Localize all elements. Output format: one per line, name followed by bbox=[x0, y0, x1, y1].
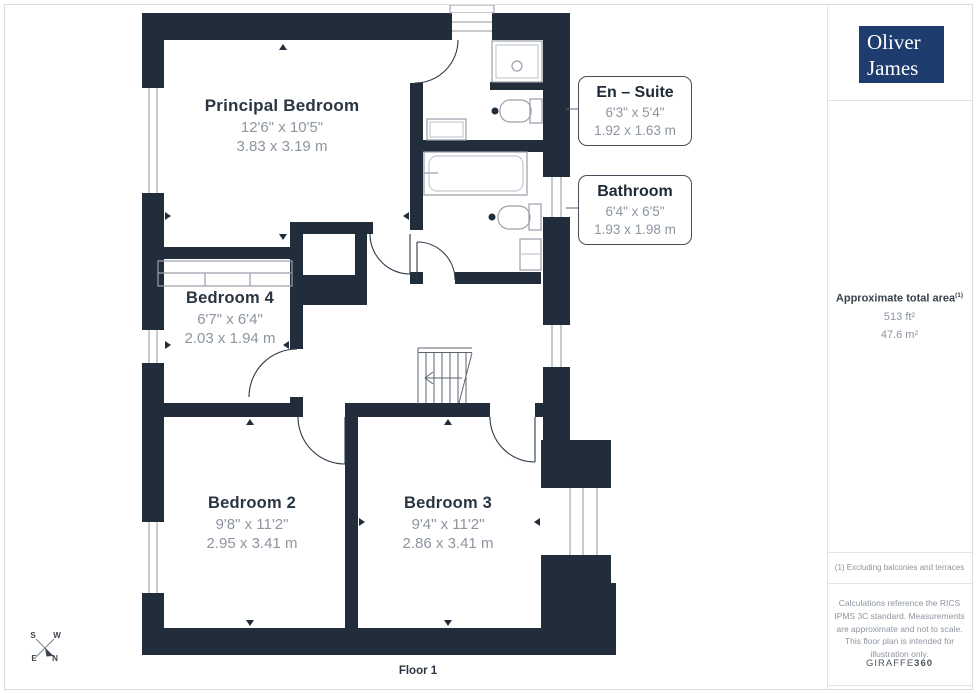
room-label-bedroom-4: Bedroom 4 6'7" x 6'4" 2.03 x 1.94 m bbox=[155, 289, 305, 348]
sidebar-section-line bbox=[827, 685, 972, 686]
oliver-james-logo: Oliver James bbox=[859, 26, 944, 83]
room-label-principal-bedroom: Principal Bedroom 12'6" x 10'5" 3.83 x 3… bbox=[172, 96, 392, 156]
sidebar-section-line bbox=[827, 100, 972, 101]
room-dims-imperial: 12'6" x 10'5" bbox=[172, 118, 392, 137]
compass-west-label: W bbox=[50, 631, 64, 640]
compass-east-label: E bbox=[27, 654, 41, 663]
brand-suffix: 360 bbox=[914, 658, 933, 669]
floor-plan-drawing bbox=[0, 0, 980, 693]
logo-line-2: James bbox=[867, 55, 944, 81]
floor-label: Floor 1 bbox=[333, 665, 503, 677]
ensuite-door-arc bbox=[415, 40, 458, 83]
callout-dims-imperial: 6'4" x 6'5" bbox=[581, 203, 689, 221]
total-area-block: Approximate total area(1) 513 ft² 47.6 m… bbox=[827, 292, 972, 341]
area-footnote-marker: (1) bbox=[955, 292, 963, 299]
sidebar-section-line bbox=[827, 583, 972, 584]
bathtub-icon bbox=[424, 152, 527, 195]
bedroom4-door-arc bbox=[249, 349, 297, 397]
ensuite-sink-icon bbox=[427, 119, 466, 140]
bathroom-sink-icon bbox=[520, 239, 541, 270]
compass-south-label: S bbox=[26, 631, 40, 640]
callout-title: En – Suite bbox=[581, 84, 689, 102]
brand-name: GIRAFFE bbox=[866, 658, 914, 669]
giraffe360-brand: GIRAFFE360 bbox=[827, 658, 972, 669]
staircase bbox=[418, 348, 472, 404]
bedroom3-door-arc bbox=[490, 417, 535, 462]
total-area-title: Approximate total area(1) bbox=[827, 292, 972, 305]
principal-bedroom-door-arc bbox=[370, 234, 410, 274]
callout-bathroom: Bathroom 6'4" x 6'5" 1.93 x 1.98 m bbox=[578, 175, 692, 245]
callout-dims-metric: 1.93 x 1.98 m bbox=[581, 221, 689, 239]
floor-plan-page: Principal Bedroom 12'6" x 10'5" 3.83 x 3… bbox=[0, 0, 980, 693]
callout-en-suite: En – Suite 6'3" x 5'4" 1.92 x 1.63 m bbox=[578, 76, 692, 146]
room-dims-imperial: 9'8" x 11'2" bbox=[152, 515, 352, 534]
shower-icon bbox=[492, 41, 542, 82]
room-dims-metric: 2.86 x 3.41 m bbox=[348, 534, 548, 553]
room-label-bedroom-3: Bedroom 3 9'4" x 11'2" 2.86 x 3.41 m bbox=[348, 494, 548, 553]
room-dims-metric: 2.95 x 3.41 m bbox=[152, 534, 352, 553]
area-footnote: (1) Excluding balconies and terraces bbox=[827, 563, 972, 572]
room-name: Principal Bedroom bbox=[172, 96, 392, 116]
callout-title: Bathroom bbox=[581, 183, 689, 201]
room-name: Bedroom 2 bbox=[152, 494, 352, 513]
room-dims-imperial: 9'4" x 11'2" bbox=[348, 515, 548, 534]
logo-line-1: Oliver bbox=[867, 29, 944, 55]
sidebar-section-line bbox=[827, 552, 972, 553]
room-name: Bedroom 4 bbox=[155, 289, 305, 308]
wardrobe-icon bbox=[158, 261, 292, 286]
total-area-ft: 513 ft² bbox=[827, 311, 972, 323]
room-dims-metric: 3.83 x 3.19 m bbox=[172, 137, 392, 156]
sidebar-divider bbox=[827, 4, 828, 689]
bedroom2-door-arc bbox=[298, 417, 345, 464]
disclaimer-text: Calculations reference the RICS IPMS 3C … bbox=[832, 597, 967, 661]
callout-dims-metric: 1.92 x 1.63 m bbox=[581, 122, 689, 140]
compass-north-label: N bbox=[48, 654, 62, 663]
room-dims-metric: 2.03 x 1.94 m bbox=[155, 329, 305, 348]
room-label-bedroom-2: Bedroom 2 9'8" x 11'2" 2.95 x 3.41 m bbox=[152, 494, 352, 553]
stairs-direction-arrow bbox=[425, 372, 462, 384]
bathroom-toilet-icon bbox=[489, 204, 542, 230]
room-dims-imperial: 6'7" x 6'4" bbox=[155, 310, 305, 329]
total-area-m: 47.6 m² bbox=[827, 329, 972, 341]
callout-dims-imperial: 6'3" x 5'4" bbox=[581, 104, 689, 122]
room-name: Bedroom 3 bbox=[348, 494, 548, 513]
ensuite-toilet-icon bbox=[492, 99, 543, 123]
